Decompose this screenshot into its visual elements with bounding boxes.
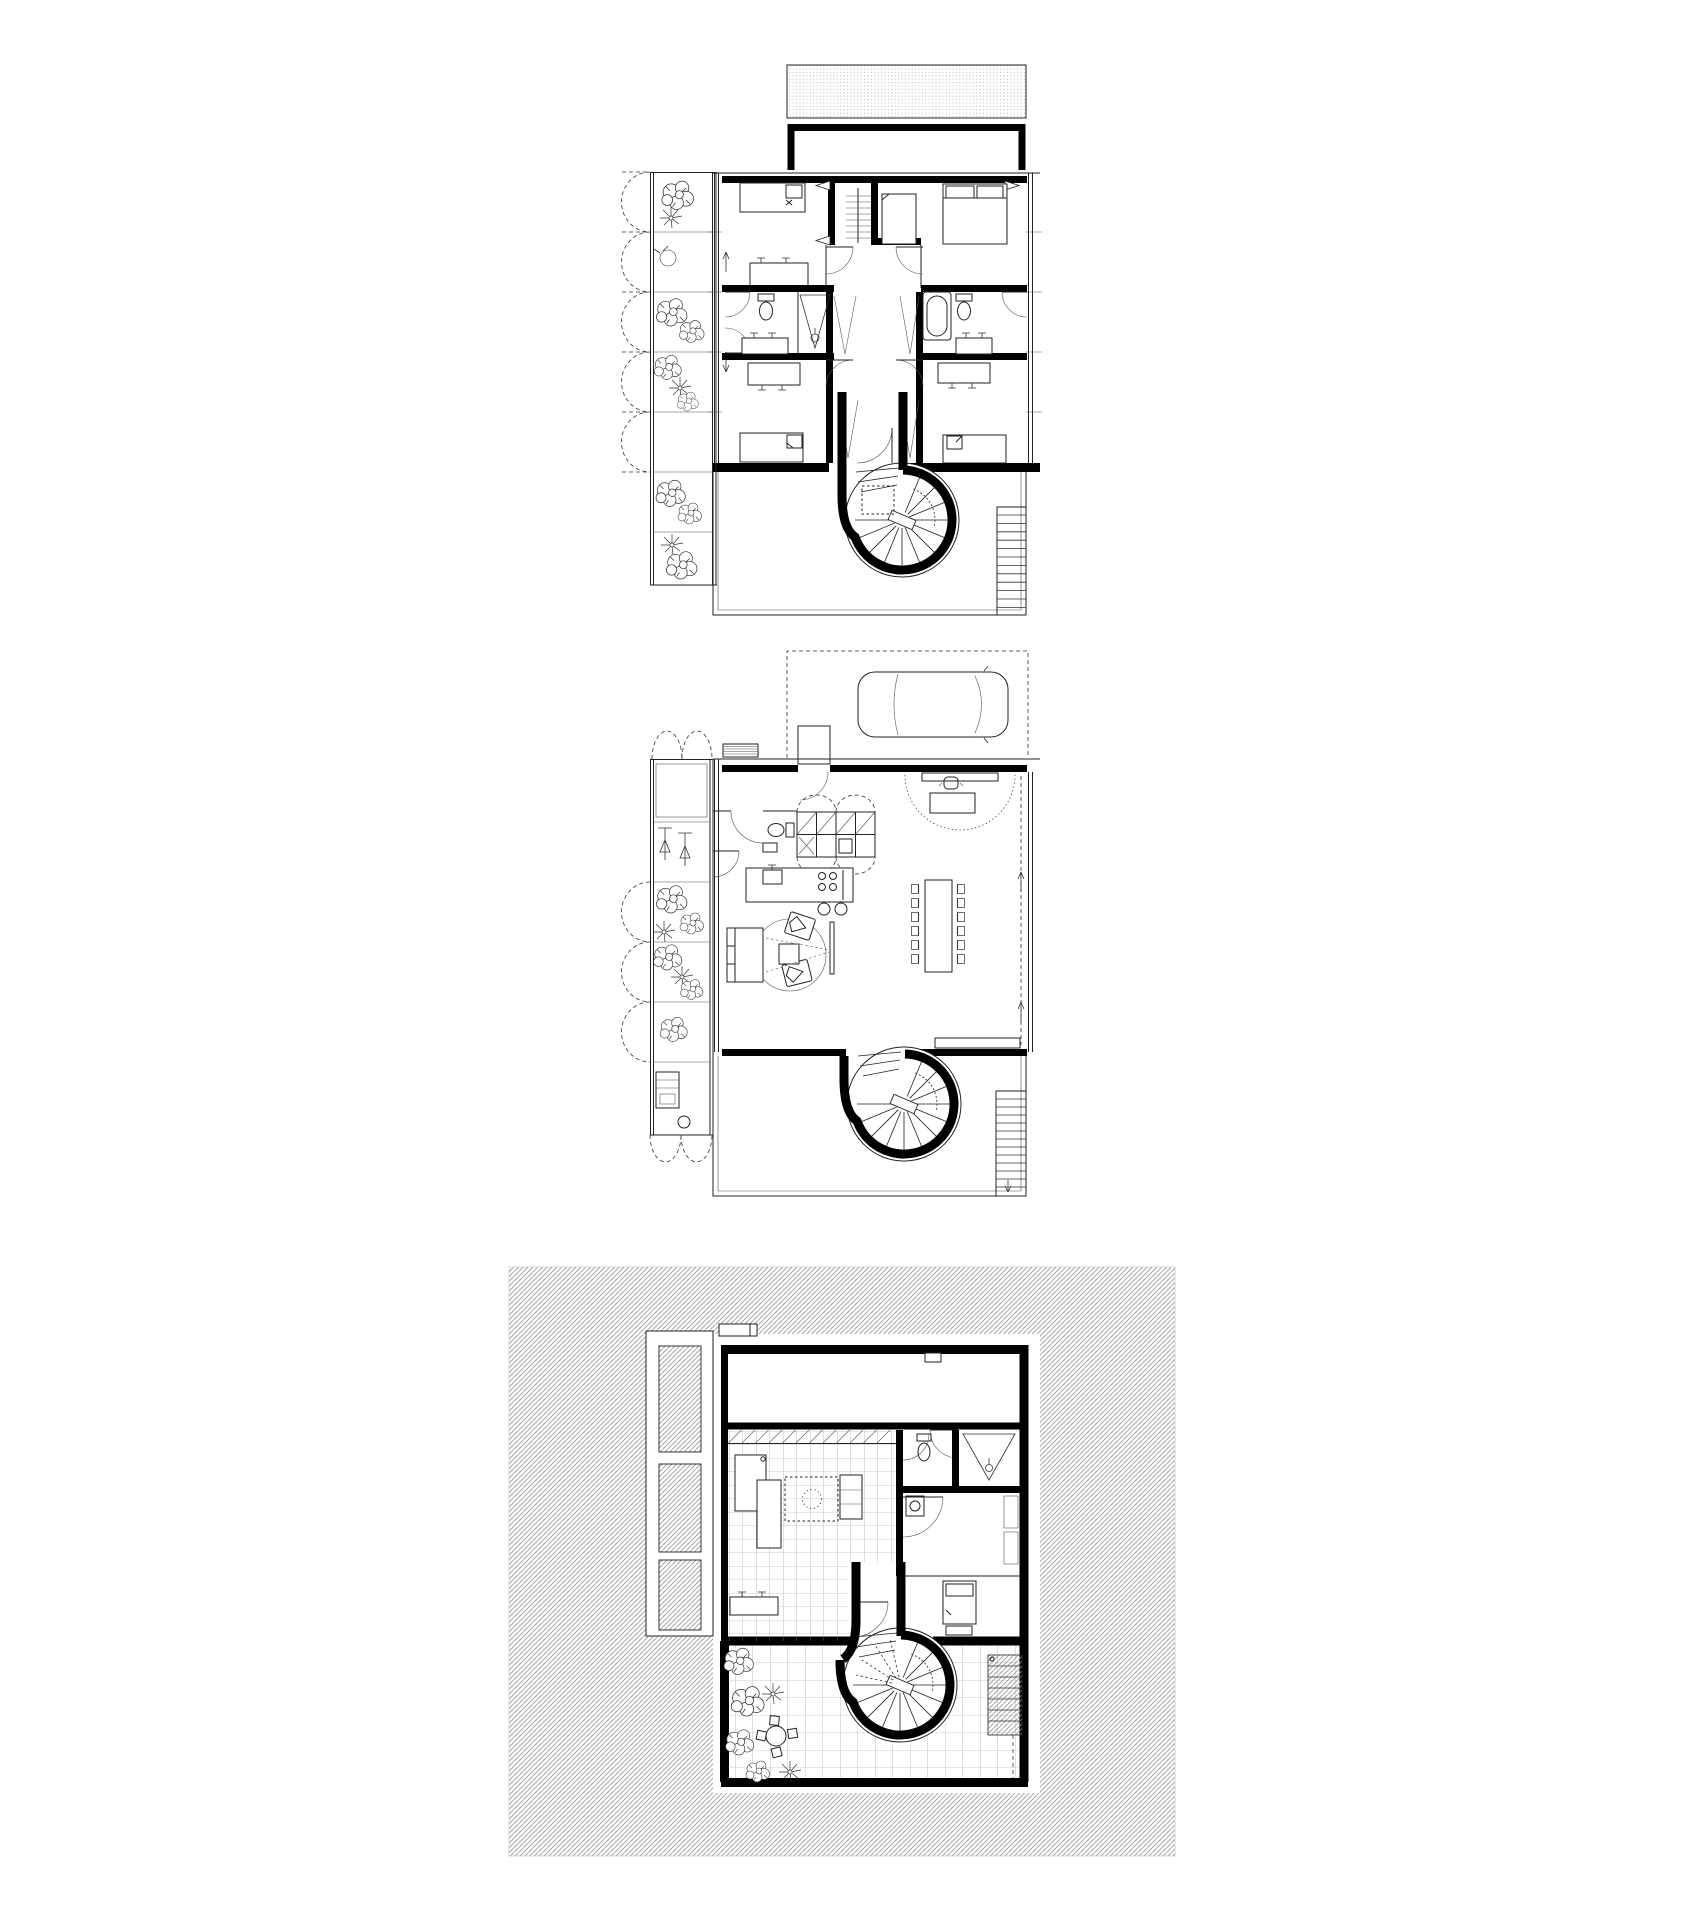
balcony-garden-strip: [622, 172, 718, 585]
bedroom-3: [740, 360, 853, 462]
glazed-facades: [715, 759, 1033, 1052]
upper-floor-plan: [622, 65, 1043, 615]
entry-door: [798, 726, 830, 764]
conservatory-strip: [622, 731, 714, 1162]
vanity: [730, 1597, 778, 1615]
roof-canopy-hatch: [787, 65, 1026, 118]
desk: [938, 363, 990, 383]
desk: [930, 793, 975, 813]
armchair: [784, 912, 816, 941]
toilet: [918, 1443, 930, 1461]
kitchen-wall-units: [797, 795, 875, 874]
stool: [818, 903, 830, 915]
wc: [713, 811, 797, 857]
living-area: [727, 912, 834, 991]
bedroom-1: [740, 183, 808, 287]
bench: [946, 1626, 972, 1635]
equipment-box: [656, 1072, 679, 1108]
study-nook: [905, 773, 1015, 830]
bathroom-left: [725, 292, 830, 354]
vanity: [742, 338, 788, 354]
spiral-stair: [842, 392, 959, 577]
ground-floor-plan: [622, 651, 1041, 1196]
awning-scallops-top: [652, 731, 712, 759]
planter-bed: [659, 1464, 701, 1552]
bathroom-right: [923, 292, 1027, 354]
sofa: [727, 928, 763, 982]
stool: [835, 903, 847, 915]
dresser: [882, 194, 916, 244]
vanity: [956, 338, 992, 354]
pillow: [786, 185, 802, 198]
toilet: [768, 824, 784, 837]
chimney-tab: [719, 1324, 757, 1336]
entry: [723, 726, 830, 800]
desk: [748, 363, 800, 385]
sideboard: [935, 1038, 1020, 1048]
seedling-stakes: [658, 828, 692, 866]
floor-plan-sheet: [0, 0, 1684, 1920]
kitchen-island: [746, 865, 853, 915]
toilet: [958, 302, 971, 320]
vanity: [750, 263, 808, 287]
planter-bed: [659, 1346, 701, 1452]
shower: [800, 295, 830, 348]
side-table: [779, 944, 799, 964]
small-sink: [763, 843, 777, 852]
car: [858, 666, 1008, 743]
glass-room: [656, 764, 707, 817]
tv-panel: [830, 922, 834, 974]
bifold-closets: [834, 296, 919, 354]
roof-parapet-wall: [791, 128, 1022, 171]
garden-level-plan: [509, 1267, 1175, 1856]
basin: [906, 1496, 924, 1516]
bedroom-4: [896, 360, 1006, 463]
spiral-stair: [844, 1047, 961, 1161]
dining-table: [912, 880, 965, 972]
wall-fixture: [925, 1353, 941, 1362]
plans-drawing: [0, 0, 1684, 1920]
drain: [678, 1116, 690, 1128]
bedroom-2: [882, 184, 1007, 244]
awning-scallops: [622, 172, 651, 472]
work-counter: [757, 1480, 781, 1548]
planter-bed: [659, 1560, 701, 1630]
shelf: [922, 773, 998, 781]
watering-can: [654, 246, 676, 266]
toilet: [760, 302, 773, 320]
sink-unit: [840, 1475, 862, 1519]
